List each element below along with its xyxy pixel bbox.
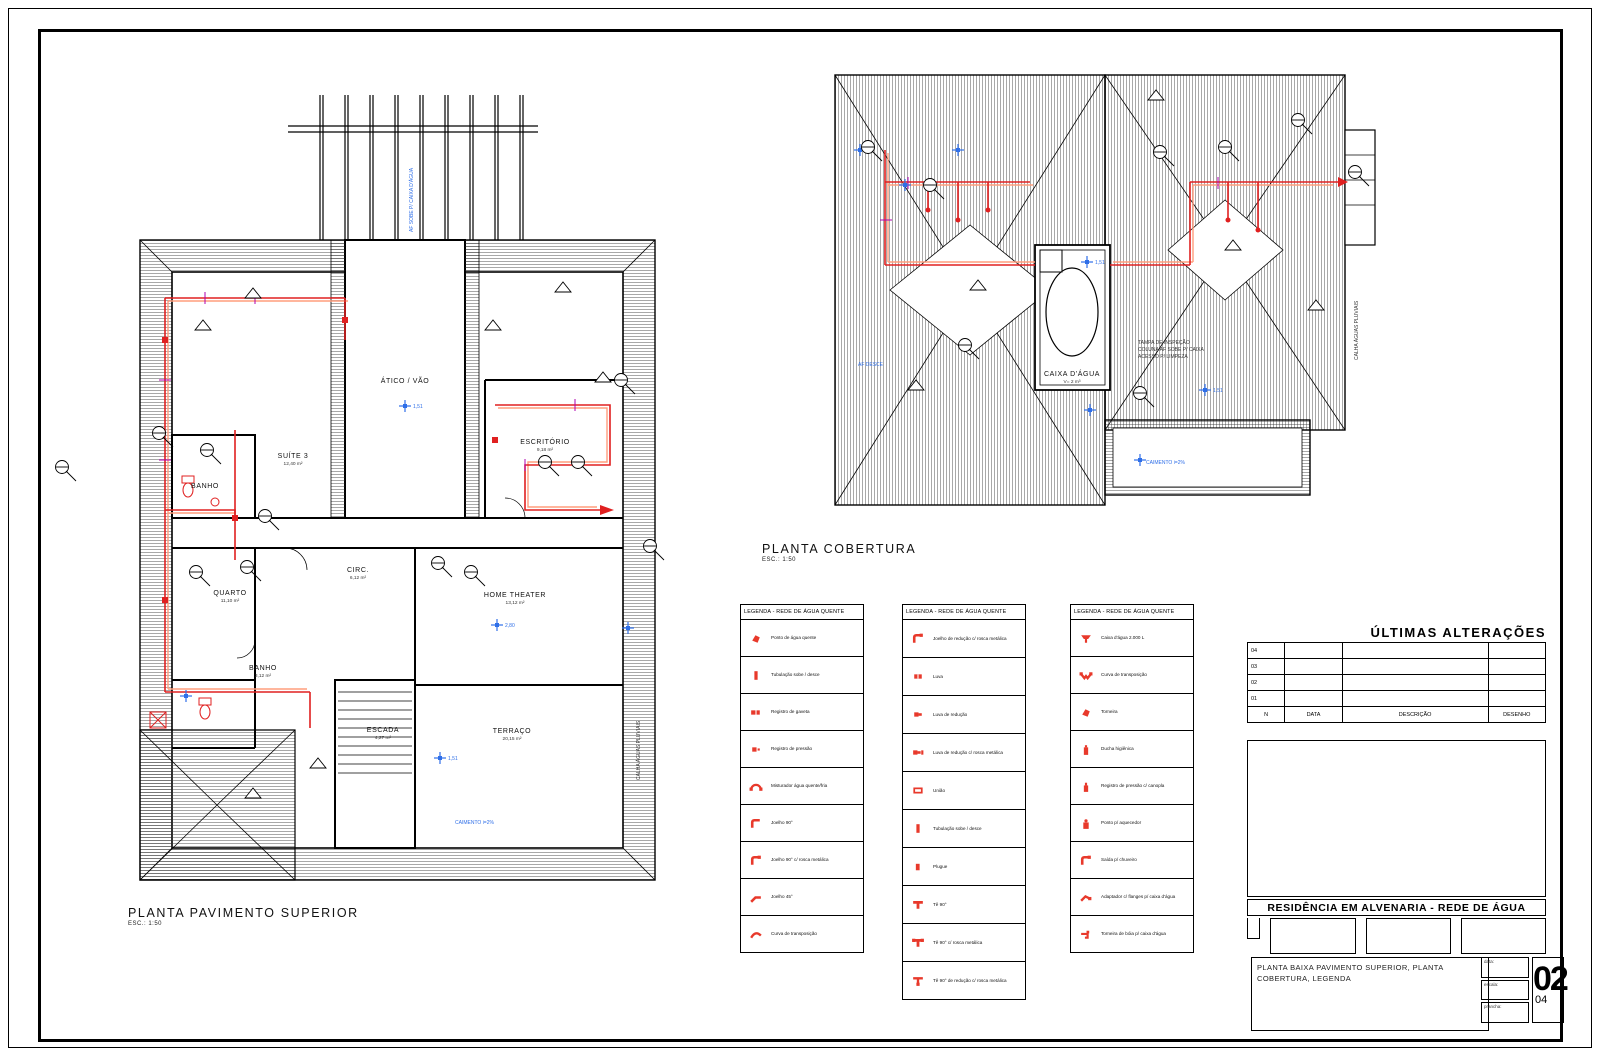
legend-item: Tê 90° — [903, 886, 1025, 924]
legend-item-label: Joelho 90° c/ rosca metálica — [771, 857, 863, 863]
legend-item-label: Joelho de redução c/ rosca metálica — [933, 636, 1025, 642]
legend-item-label: Misturador água quente/fria — [771, 783, 863, 789]
legend-item: Registro de pressão c/ canopla — [1071, 768, 1193, 805]
level-value: 1,51 — [1095, 260, 1105, 266]
room-label: ESCRITÓRIO — [520, 437, 570, 446]
legend-item: Joelho de redução c/ rosca metálica — [903, 620, 1025, 658]
room-area: 13,12 m² — [506, 600, 525, 606]
revision-cell — [1285, 643, 1342, 659]
lower-left-roof — [140, 730, 295, 880]
legend-item: Adaptador c/ flanges p/ caixa d'água — [1071, 879, 1193, 916]
level-value: 1,51 — [448, 756, 458, 762]
legend-item-label: Caixa d'água 2.000 L — [1101, 635, 1193, 641]
side-block — [1345, 130, 1375, 245]
room-label: SUÍTE 3 — [278, 451, 309, 460]
revision-header: DESCRIÇÃO — [1342, 707, 1488, 723]
right-roof — [1105, 75, 1345, 430]
plan-superior-title: PLANTA PAVIMENTO SUPERIOR — [128, 906, 359, 920]
room-label: TERRAÇO — [493, 728, 531, 735]
terrace — [1105, 420, 1310, 495]
revisions-block: ÚLTIMAS ALTERAÇÕES 04030201NDATADESCRIÇÃ… — [1247, 625, 1546, 723]
titleblock-field: prancha: — [1481, 1002, 1529, 1023]
legend-item-label: Saída p/ chuveiro — [1101, 857, 1193, 863]
revision-number: 02 — [1248, 675, 1285, 691]
signature-box — [1461, 918, 1546, 954]
annotation-note: ACESSO P/ LIMPEZA — [1138, 354, 1188, 360]
legend-item-label: Tubulação sobe / desce — [771, 672, 863, 678]
legend-item-label: Adaptador c/ flanges p/ caixa d'água — [1101, 894, 1193, 900]
legend-item: Luva de redução — [903, 696, 1025, 734]
room-label: HOME THEATER — [484, 592, 546, 599]
room-area: 4,27 m² — [375, 735, 392, 741]
titleblock-field: escala: — [1481, 980, 1529, 1001]
legend-item: Tê 90° de redução c/ rosca metálica — [903, 962, 1025, 999]
legend-item-label: Tê 90° c/ rosca metálica — [933, 940, 1025, 946]
legend-item: Tubulação sobe / desce — [903, 810, 1025, 848]
revision-cell — [1342, 659, 1488, 675]
project-title-bar: RESIDÊNCIA EM ALVENARIA - REDE DE ÁGUA — [1247, 899, 1546, 916]
legend-item-label: Curva de transposição — [1101, 672, 1193, 678]
titleblock-fields: data:escala:prancha: — [1481, 957, 1529, 1023]
detail-callout-icon — [56, 461, 77, 482]
legend-item: Luva — [903, 658, 1025, 696]
room-label: CIRC. — [347, 567, 369, 574]
signature-box — [1270, 918, 1355, 954]
room-area: 6,12 m² — [350, 575, 367, 581]
plan-superior-scale: ESC.: 1:50 — [128, 921, 359, 927]
legend-item-label: Joelho 45° — [771, 894, 863, 900]
legend-item-label: Ponto p/ aquecedor — [1101, 820, 1193, 826]
legend-item-label: Registro de pressão c/ canopla — [1101, 783, 1193, 789]
legend-item: Saída p/ chuveiro — [1071, 842, 1193, 879]
annotation-note: AF DESCE — [858, 362, 884, 368]
room-area: 12,40 m² — [284, 461, 303, 467]
plan-cobertura-caption: PLANTA COBERTURA ESC.: 1:50 — [762, 542, 916, 563]
room-area: 11,10 m² — [221, 598, 240, 604]
legend-item-label: Curva de transposição — [771, 931, 863, 937]
legend-item: Ponto de água quente — [741, 620, 863, 657]
room-label: ÁTICO / VÃO — [381, 376, 430, 385]
sheet-number-cell: 02 04 — [1532, 957, 1564, 1023]
room-area: V= 2 m³ — [1064, 379, 1081, 385]
annotation-note: CAIMENTO i=2% — [1146, 460, 1185, 466]
project-title: RESIDÊNCIA EM ALVENARIA - REDE DE ÁGUA — [1267, 902, 1525, 914]
level-value: 1,51 — [413, 404, 423, 410]
legend-item: Joelho 45° — [741, 879, 863, 916]
revision-header-row: NDATADESCRIÇÃODESENHO — [1248, 707, 1546, 723]
revision-header: DESENHO — [1488, 707, 1545, 723]
room-label: BANHO — [191, 483, 219, 490]
legend-item: Joelho 90° — [741, 805, 863, 842]
legend-table-1: LEGENDA - REDE DE ÁGUA QUENTE Ponto de á… — [740, 604, 864, 953]
plan-cobertura-scale: ESC.: 1:50 — [762, 557, 916, 563]
revision-cell — [1285, 659, 1342, 675]
revision-row: 03 — [1248, 659, 1546, 675]
legend-table-2: LEGENDA - REDE DE ÁGUA QUENTE Joelho de … — [902, 604, 1026, 1000]
water-tank — [1035, 245, 1110, 390]
annotation-note: COLUNA AF SOBE P/ CAIXA — [1138, 347, 1205, 353]
room-area: 20,15 m² — [503, 736, 522, 742]
legend-item: Curva de transposição — [741, 916, 863, 952]
revision-header: DATA — [1285, 707, 1342, 723]
legend-item-label: Luva de redução c/ rosca metálica — [933, 750, 1025, 756]
annotation-note: TAMPA DE INSPEÇÃO — [1138, 339, 1190, 346]
room-area: 9,18 m² — [537, 447, 554, 453]
legend-item-label: Luva de redução — [933, 712, 1025, 718]
legend-item-label: União — [933, 788, 1025, 794]
annotation-note: CAIMENTO i=2% — [455, 820, 494, 826]
revision-row: 02 — [1248, 675, 1546, 691]
legend-item: Curva de transposição — [1071, 657, 1193, 694]
revision-cell — [1342, 643, 1488, 659]
legend-item: Ponto p/ aquecedor — [1071, 805, 1193, 842]
room-label: ESCADA — [367, 727, 399, 734]
plan-cobertura-title: PLANTA COBERTURA — [762, 542, 916, 556]
revision-row: 04 — [1248, 643, 1546, 659]
titleblock-field: data: — [1481, 957, 1529, 978]
legend-item-label: Tê 90° — [933, 902, 1025, 908]
legend-item-label: Torneira de bóia p/ caixa d'água — [1101, 931, 1193, 937]
level-value: 2,80 — [505, 623, 515, 629]
annotation-note: CALHA ÁGUAS PLUVIAIS — [635, 720, 642, 780]
revision-cell — [1488, 643, 1545, 659]
legend-item: União — [903, 772, 1025, 810]
room-label: QUARTO — [213, 590, 246, 597]
legend-item: Registro de pressão — [741, 731, 863, 768]
legend-item: Caixa d'água 2.000 L — [1071, 620, 1193, 657]
annotation-note: CALHA ÁGUAS PLUVIAIS — [1353, 300, 1360, 360]
signature-row — [1247, 918, 1546, 954]
legend-item: Joelho 90° c/ rosca metálica — [741, 842, 863, 879]
plan-superior-drawing: ÁTICO / VÃOSUÍTE 312,40 m²ESCRITÓRIO9,18… — [55, 80, 675, 900]
legend-item-label: Joelho 90° — [771, 820, 863, 826]
legend-item-label: Registro de gaveta — [771, 709, 863, 715]
revision-cell — [1285, 675, 1342, 691]
revision-cell — [1488, 659, 1545, 675]
revision-cell — [1342, 675, 1488, 691]
room-label: BANHO — [249, 665, 277, 672]
legend-item: Misturador água quente/fria — [741, 768, 863, 805]
legend-item: Luva de redução c/ rosca metálica — [903, 734, 1025, 772]
legend-item-label: Tê 90° de redução c/ rosca metálica — [933, 978, 1025, 984]
legend-item: Tê 90° c/ rosca metálica — [903, 924, 1025, 962]
notes-box — [1247, 740, 1546, 897]
revision-cell — [1488, 675, 1545, 691]
legend-1-title: LEGENDA - REDE DE ÁGUA QUENTE — [741, 605, 863, 620]
revision-cell — [1488, 691, 1545, 707]
legend-item-label: Ponto de água quente — [771, 635, 863, 641]
legend-item-label: Plugue — [933, 864, 1025, 870]
plan-superior-caption: PLANTA PAVIMENTO SUPERIOR ESC.: 1:50 — [128, 906, 359, 927]
legend-item-label: Luva — [933, 674, 1025, 680]
legend-item-label: Registro de pressão — [771, 746, 863, 752]
legend-item: Torneira — [1071, 694, 1193, 731]
revisions-table: 04030201NDATADESCRIÇÃODESENHO — [1247, 642, 1546, 723]
legend-item-label: Tubulação sobe / desce — [933, 826, 1025, 832]
legend-table-3: LEGENDA - REDE DE ÁGUA QUENTE Caixa d'ág… — [1070, 604, 1194, 953]
revision-number: 01 — [1248, 691, 1285, 707]
legend-item: Ducha higiênica — [1071, 731, 1193, 768]
signature-box — [1366, 918, 1451, 954]
room-label: CAIXA D'ÁGUA — [1044, 369, 1100, 378]
sheet-content-description: PLANTA BAIXA PAVIMENTO SUPERIOR, PLANTA … — [1251, 957, 1489, 1031]
legend-item: Torneira de bóia p/ caixa d'água — [1071, 916, 1193, 952]
annotation-note: AF SOBE P/ CAIXA D'ÁGUA — [408, 167, 415, 232]
signature-stub — [1247, 918, 1260, 939]
legend-item: Tubulação sobe / desce — [741, 657, 863, 694]
level-value: 1,51 — [1213, 388, 1223, 394]
legend-item-label: Torneira — [1101, 709, 1193, 715]
revision-number: 04 — [1248, 643, 1285, 659]
revision-header: N — [1248, 707, 1285, 723]
legend-2-title: LEGENDA - REDE DE ÁGUA QUENTE — [903, 605, 1025, 620]
plan-cobertura-drawing: CAIXA D'ÁGUAV= 2 m³1,511,51TAMPA DE INSP… — [828, 60, 1388, 560]
legend-item: Plugue — [903, 848, 1025, 886]
revision-cell — [1342, 691, 1488, 707]
revision-number: 03 — [1248, 659, 1285, 675]
legend-item: Registro de gaveta — [741, 694, 863, 731]
revisions-title: ÚLTIMAS ALTERAÇÕES — [1247, 625, 1546, 640]
revision-cell — [1285, 691, 1342, 707]
room-area: 3,12 m² — [255, 673, 272, 679]
legend-item-label: Ducha higiênica — [1101, 746, 1193, 752]
sheet-number: 02 — [1533, 964, 1563, 995]
revision-row: 01 — [1248, 691, 1546, 707]
legend-3-title: LEGENDA - REDE DE ÁGUA QUENTE — [1071, 605, 1193, 620]
